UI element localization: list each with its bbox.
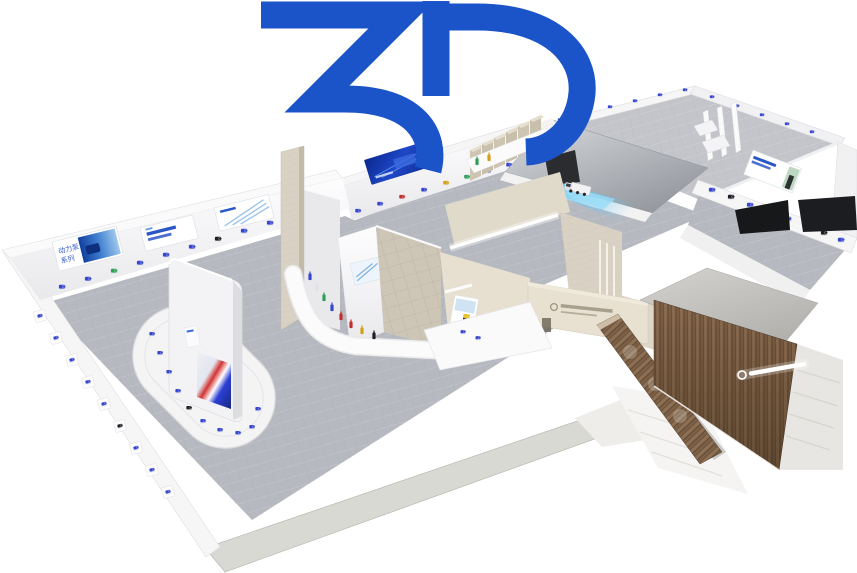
product-model bbox=[58, 285, 65, 290]
product-model bbox=[727, 195, 734, 200]
product-model bbox=[809, 130, 814, 134]
product-model bbox=[460, 330, 466, 334]
wood-light-spot bbox=[673, 409, 687, 423]
display-niche bbox=[97, 397, 110, 410]
logo-3d bbox=[261, 1, 582, 170]
product-model bbox=[166, 370, 172, 375]
display-niche bbox=[65, 353, 78, 366]
product-model bbox=[709, 95, 714, 99]
product-model bbox=[214, 237, 221, 242]
product-model bbox=[200, 419, 206, 424]
scene-canvas: 动力泵 系列 bbox=[0, 0, 857, 573]
product-model bbox=[820, 231, 827, 236]
product-model bbox=[443, 181, 449, 186]
product-model bbox=[632, 99, 637, 103]
product-model bbox=[421, 188, 427, 193]
product-model bbox=[255, 407, 261, 412]
product-model bbox=[399, 195, 405, 200]
product-model bbox=[217, 428, 223, 433]
display-niche bbox=[161, 485, 174, 498]
product-model bbox=[475, 336, 481, 340]
tower-side-shade bbox=[233, 281, 242, 420]
product-model bbox=[162, 253, 169, 258]
product-model bbox=[682, 88, 687, 92]
product-model bbox=[708, 188, 715, 193]
product-model bbox=[149, 332, 155, 337]
product-model bbox=[175, 389, 181, 394]
product-model bbox=[464, 175, 470, 180]
product-model bbox=[110, 269, 117, 274]
product-model bbox=[249, 425, 255, 430]
product-model bbox=[377, 202, 383, 207]
product-model bbox=[235, 431, 241, 436]
display-niche bbox=[113, 419, 126, 432]
product-model bbox=[657, 93, 662, 97]
product-model bbox=[266, 221, 273, 226]
product-model bbox=[84, 277, 91, 282]
dark-panel bbox=[798, 196, 857, 232]
product-model bbox=[837, 238, 844, 243]
product-model bbox=[355, 209, 361, 214]
logo-digit-3 bbox=[261, 15, 430, 170]
product-model bbox=[240, 229, 247, 234]
product-model bbox=[136, 261, 143, 266]
product-model bbox=[157, 351, 163, 356]
exhibition-3d-overview: 3D bbox=[0, 0, 857, 573]
display-niche bbox=[49, 331, 62, 344]
display-niche bbox=[129, 441, 142, 454]
product-model bbox=[607, 105, 612, 109]
product-model bbox=[784, 122, 789, 126]
wood-light-spot bbox=[623, 345, 637, 359]
display-niche bbox=[145, 463, 158, 476]
product-model bbox=[186, 406, 192, 411]
display-niche bbox=[81, 375, 94, 388]
display-niche bbox=[33, 309, 46, 322]
product-model bbox=[188, 245, 195, 250]
product-model bbox=[759, 113, 764, 117]
